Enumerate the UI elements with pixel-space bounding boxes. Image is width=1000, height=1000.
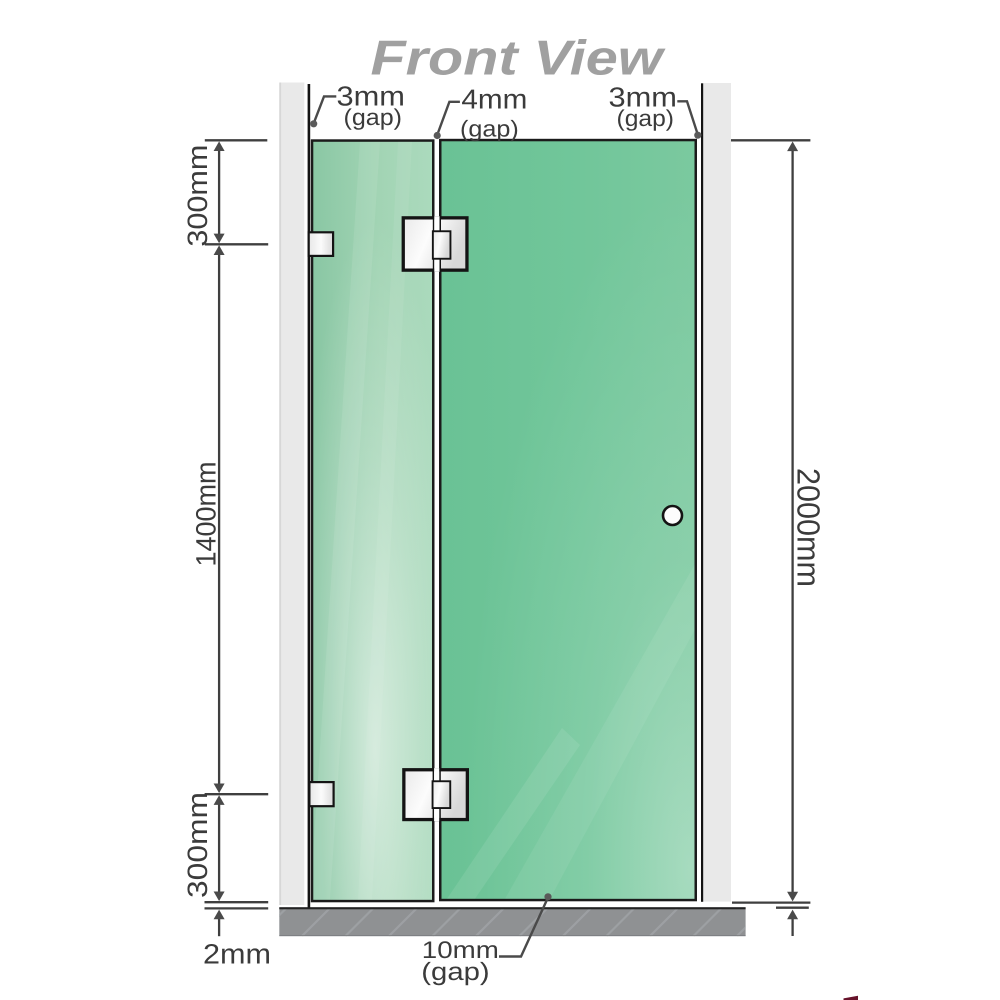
svg-text:(gap): (gap) [460,115,519,141]
svg-text:2000mm: 2000mm [791,468,827,587]
svg-text:4mm: 4mm [461,83,527,114]
svg-text:(gap): (gap) [344,104,403,130]
svg-text:Front View: Front View [371,32,666,86]
svg-text:2mm: 2mm [203,939,271,970]
svg-text:300mm: 300mm [182,792,213,898]
svg-text:(gap): (gap) [421,958,489,986]
svg-text:(gap): (gap) [617,105,675,131]
svg-text:1400mm: 1400mm [191,462,222,567]
svg-text:300mm: 300mm [182,145,213,247]
